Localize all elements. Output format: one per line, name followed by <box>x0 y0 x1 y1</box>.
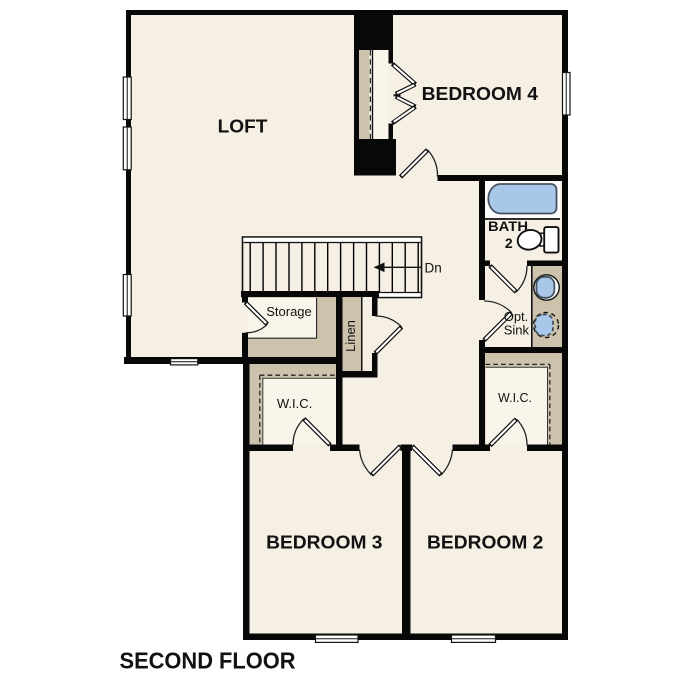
svg-text:W.I.C.: W.I.C. <box>277 396 313 411</box>
svg-text:W.I.C.: W.I.C. <box>498 390 532 405</box>
svg-text:Opt.: Opt. <box>504 309 529 324</box>
svg-text:Dn: Dn <box>425 260 442 275</box>
svg-text:SECOND FLOOR: SECOND FLOOR <box>120 648 296 674</box>
svg-text:BATH: BATH <box>488 218 528 234</box>
svg-text:LOFT: LOFT <box>218 116 269 137</box>
svg-text:BEDROOM 3: BEDROOM 3 <box>266 531 382 552</box>
svg-text:2: 2 <box>505 235 513 251</box>
svg-text:Sink: Sink <box>504 323 530 338</box>
svg-text:BEDROOM 2: BEDROOM 2 <box>427 531 543 552</box>
svg-text:BEDROOM 4: BEDROOM 4 <box>422 83 539 104</box>
svg-text:Storage: Storage <box>266 304 312 319</box>
svg-text:Linen: Linen <box>343 320 358 352</box>
